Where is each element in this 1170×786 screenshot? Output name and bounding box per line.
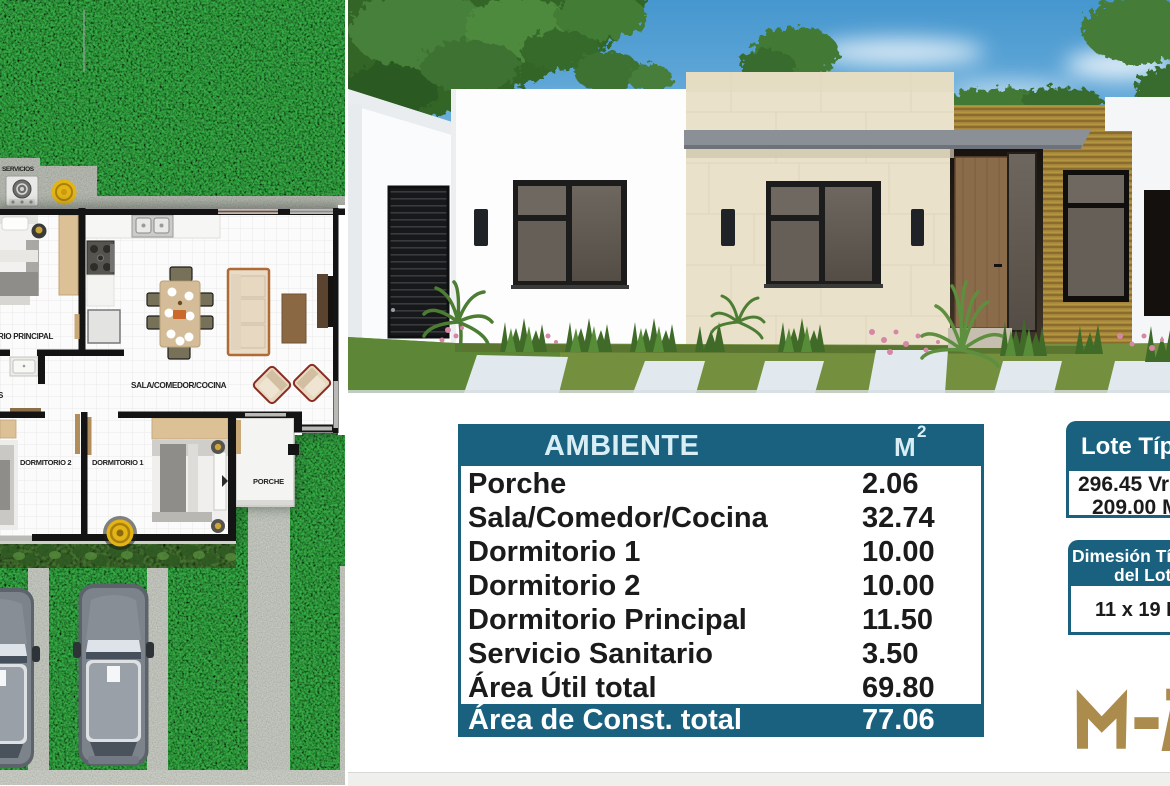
- svg-text:DORMITORIO 2: DORMITORIO 2: [20, 458, 71, 467]
- svg-text:DORMITORIO 1: DORMITORIO 1: [92, 458, 143, 467]
- svg-text:RIO PRINCIPAL: RIO PRINCIPAL: [0, 332, 53, 341]
- svg-text:SALA/COMEDOR/COCINA: SALA/COMEDOR/COCINA: [131, 381, 227, 390]
- svg-text:SERVICIOS: SERVICIOS: [2, 166, 35, 173]
- svg-text:PORCHE: PORCHE: [253, 477, 284, 486]
